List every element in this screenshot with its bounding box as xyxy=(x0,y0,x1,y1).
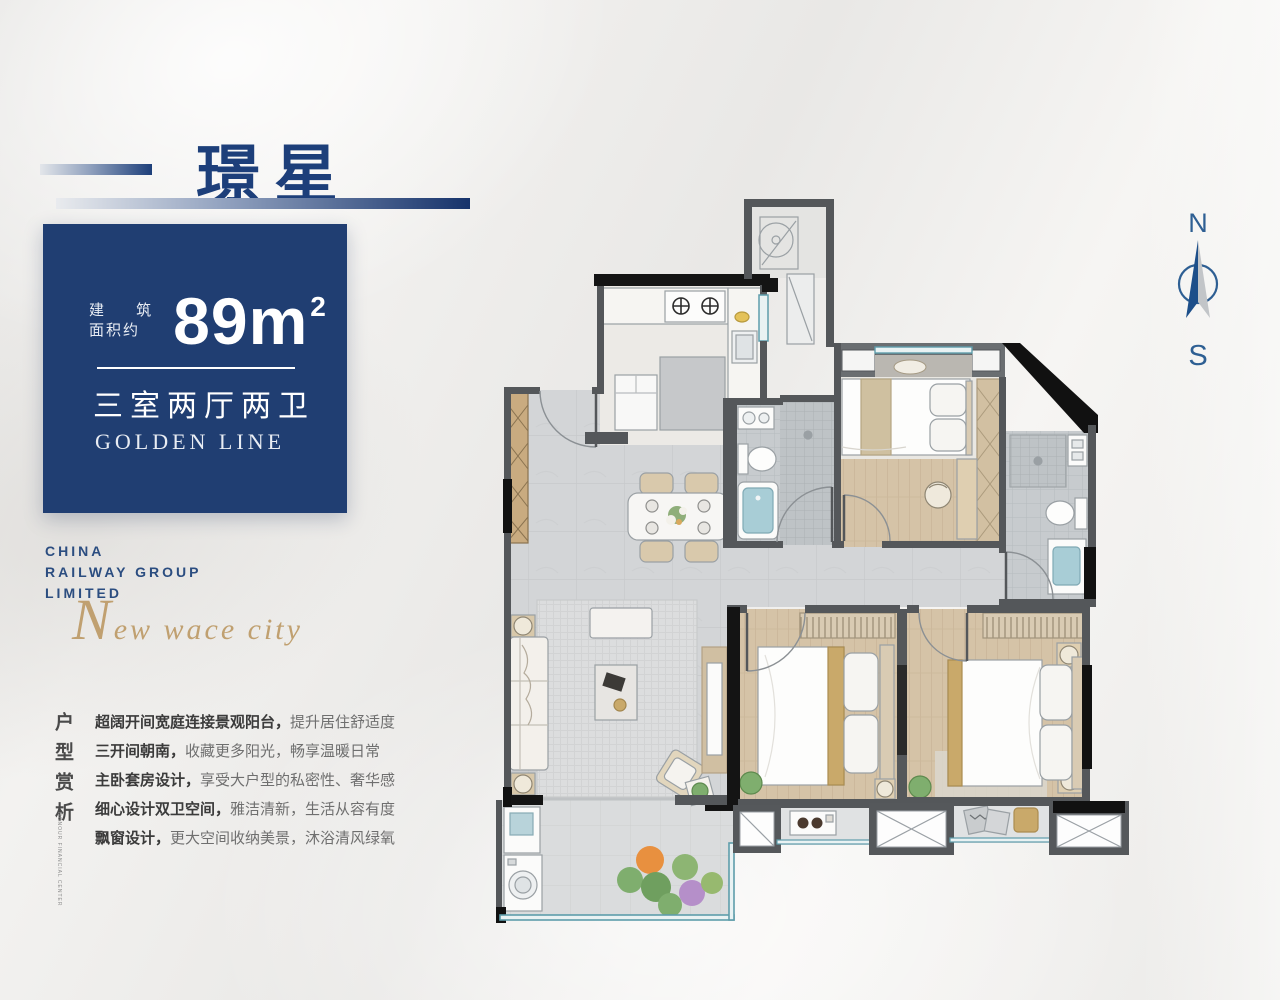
plant xyxy=(909,776,931,798)
master-bed xyxy=(842,379,972,455)
bedroomA-wardrobe xyxy=(800,613,895,638)
area-value: 89m2 xyxy=(173,292,327,351)
brand-line2: RAILWAY GROUP xyxy=(45,562,201,583)
kitchen-south-wall-stub xyxy=(585,432,628,444)
bay-window-1 xyxy=(733,805,781,853)
bathroom1-shower-floor xyxy=(780,401,836,545)
kitchen-dish xyxy=(735,312,749,322)
pillow xyxy=(1040,665,1072,720)
master-west-wall xyxy=(834,343,841,548)
pillow xyxy=(844,715,878,773)
area-label: 建 筑 面积约 xyxy=(89,301,165,341)
headboard xyxy=(880,645,894,785)
bedroomB-north-wall xyxy=(907,605,919,613)
bathroom1-west-wall xyxy=(723,398,737,547)
bed-runner xyxy=(828,647,844,785)
shaft-east-wall xyxy=(826,201,834,347)
balcony-glass-south xyxy=(500,915,734,920)
seat-glass-1 xyxy=(777,840,873,844)
bay-window-2 xyxy=(869,803,954,855)
feature-line: 飘窗设计，更大空间收纳美景，沐浴清风绿氧 xyxy=(95,824,465,853)
master-south-wall xyxy=(834,541,844,548)
kitchen-window xyxy=(759,295,768,341)
dining-chair xyxy=(685,541,718,562)
compass: N S xyxy=(1158,208,1238,378)
bedside-lamp xyxy=(877,781,893,797)
compass-needle-icon xyxy=(1172,236,1224,332)
kitchen-west-wall xyxy=(597,285,604,394)
vanity-2 xyxy=(1048,539,1086,594)
card-divider xyxy=(97,367,295,369)
pillow xyxy=(844,653,878,711)
diagonal-wall xyxy=(1002,343,1098,433)
master-north-wall xyxy=(834,343,1005,377)
shower-drain xyxy=(804,431,812,439)
title-dash-bar xyxy=(40,164,152,175)
living-bedroomA-wall xyxy=(727,607,740,807)
foyer-north-wall xyxy=(504,387,540,394)
bed-runner xyxy=(861,379,891,455)
floor-plan xyxy=(480,195,1140,940)
brand-line1: CHINA xyxy=(45,541,201,562)
bathtub-1 xyxy=(738,482,778,539)
table-lamp xyxy=(514,775,532,793)
west-wall xyxy=(504,387,511,805)
compass-south-label: S xyxy=(1158,340,1238,373)
pillow xyxy=(930,384,966,416)
headboard xyxy=(966,381,972,455)
feature-line: 三开间朝南，收藏更多阳光，畅享温暖日常 xyxy=(95,737,465,766)
unit-subtitle: GOLDEN LINE xyxy=(95,429,285,455)
bathroom2-west-wall xyxy=(999,377,1006,553)
bed-runner xyxy=(948,660,962,786)
compass-north-label: N xyxy=(1158,208,1238,239)
plant xyxy=(740,772,762,794)
bathroom1-north-wall xyxy=(723,398,783,405)
feature-line: 超阔开间宽庭连接景观阳台，提升居住舒适度 xyxy=(95,708,465,737)
dresser xyxy=(957,459,977,539)
title-rule-bar xyxy=(56,198,470,209)
bathroom1-south-wall xyxy=(723,541,783,548)
unit-info-card: 建 筑 面积约 89m2 三室两厅两卫 GOLDEN LINE xyxy=(43,224,347,513)
brand-script: New wace city xyxy=(72,586,392,653)
shaft-west-wall xyxy=(744,199,752,279)
bay-window-3 xyxy=(1049,801,1129,855)
decor-dish xyxy=(894,360,926,374)
real-estate-floorplan-poster: { "colors": { "accent_navy": "#203e72", … xyxy=(0,0,1280,1000)
section-vertical-subtext: HONOUR FINANCIAL CENTER xyxy=(56,812,62,907)
area-label-line2: 面积约 xyxy=(89,321,165,341)
dining-chair xyxy=(685,473,718,494)
area-row: 建 筑 面积约 89m2 xyxy=(89,292,327,351)
coffee-table xyxy=(595,665,637,720)
living-room-furniture xyxy=(510,600,727,806)
balcony-glass-east xyxy=(729,843,734,920)
dining-chair xyxy=(640,541,673,562)
sideboard xyxy=(590,608,652,638)
kitchen-island xyxy=(660,357,725,430)
gold-pillow xyxy=(1014,808,1038,832)
area-label-line1: 建 筑 xyxy=(89,301,165,321)
master-window xyxy=(875,347,972,353)
pillow xyxy=(1040,725,1072,780)
balcony-north-wall xyxy=(511,795,543,805)
kitchen-north-wall xyxy=(594,274,770,286)
area-superscript: 2 xyxy=(310,291,327,322)
right-light-band xyxy=(1140,0,1280,1000)
section-vertical-title: 户型赏析 xyxy=(49,712,76,832)
unit-layout-text: 三室两厅两卫 xyxy=(93,381,315,425)
tv-console xyxy=(707,663,722,755)
table-lamp xyxy=(514,617,532,635)
vanity-stool xyxy=(925,482,951,508)
shaft-floor xyxy=(751,205,828,278)
dining-chair xyxy=(640,473,673,494)
feature-line: 主卧套房设计，享受大户型的私密性、奢华感 xyxy=(95,766,465,795)
bedroomB-wardrobe xyxy=(983,613,1085,638)
shaft-north-wall xyxy=(744,199,834,207)
seat-glass-2 xyxy=(950,838,1053,842)
pillow xyxy=(930,419,966,451)
feature-list: 超阔开间宽庭连接景观阳台，提升居住舒适度 三开间朝南，收藏更多阳光，畅享温暖日常… xyxy=(95,708,465,853)
feature-line: 细心设计双卫空间，雅洁清新，生活从容有度 xyxy=(95,795,465,824)
